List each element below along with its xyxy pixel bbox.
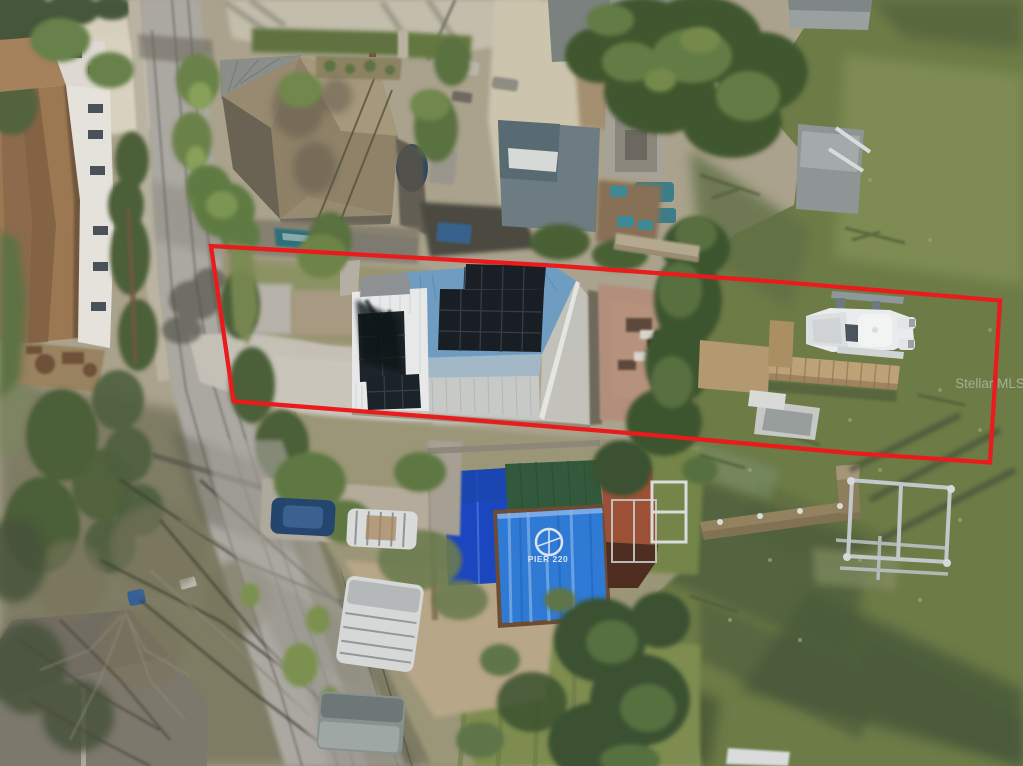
svg-text:PIER 220: PIER 220 bbox=[528, 554, 568, 564]
svg-text:Stellar MLS: Stellar MLS bbox=[955, 376, 1023, 391]
